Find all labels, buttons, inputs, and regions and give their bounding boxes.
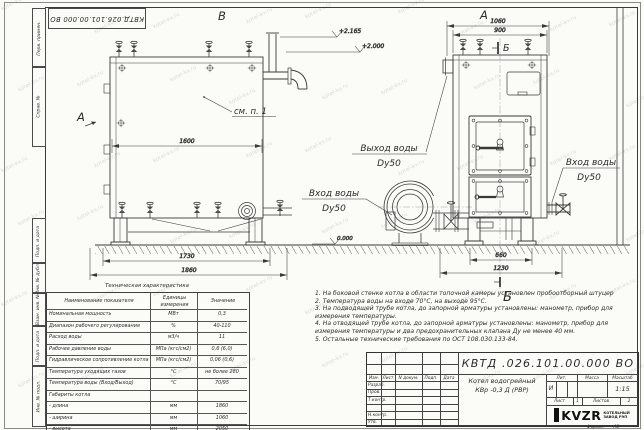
label-water-inlet-right: Вход воды (566, 158, 616, 168)
logo-kvzr: KVZR (561, 408, 601, 423)
label-water-outlet-dn: Dy50 (377, 159, 401, 169)
table-row: Рабочее давление водыМПа (кгс/см2)0,6 (6… (47, 345, 249, 357)
callout-see-note-1: см. п. 1 (234, 107, 267, 117)
fan-blower (378, 181, 472, 245)
sheets-value: 2 (620, 399, 638, 404)
note-4: 4. На отводящей трубе котла, до запорной… (315, 320, 638, 335)
table-row: Гидравлическое сопротивление котлаМПа (к… (47, 356, 249, 368)
table-row: - высотамм2050 (47, 425, 249, 430)
left-view (104, 33, 307, 245)
dim-1060: 1060 (490, 18, 505, 25)
tech-table-header: Наименование показателя Единицы измерени… (47, 293, 249, 310)
title-block: КВТД .026.101.00.000 ВО Котел водогрейны… (366, 352, 639, 427)
logo-bar (554, 408, 559, 422)
product-name: Котел водогрейный КВр -0,3 Д (РВР) (458, 377, 546, 394)
col-podp: Подп. (422, 376, 440, 381)
format-value: А3 (614, 425, 620, 430)
title-doc-number: КВТД .026.101.00.000 ВО (458, 353, 638, 374)
upper-door (469, 116, 535, 175)
table-row: - длинамм1860 (47, 402, 249, 414)
format-note: Формат А3 (568, 425, 638, 430)
col-izm: Изм. (367, 376, 381, 381)
table-row: Температура воды (Вход/Выход)°С70/95 (47, 379, 249, 391)
elevation-zero: 0.000 (337, 236, 353, 242)
section-label-b-top: Б (503, 43, 510, 54)
drawing-sheet: kotel-kv.rukotel-kv.rukotel-kv.rukotel-k… (0, 0, 644, 430)
table-row: Диапазон рабочего регулирования%40-110 (47, 322, 249, 334)
sheets-label: Листов (582, 399, 620, 404)
dim-900: 900 (494, 27, 506, 34)
label-water-inlet-left: Вход воды (309, 189, 359, 199)
sheet-value: 1 (573, 399, 582, 404)
col-list: Лист (381, 376, 395, 381)
col-ndokum: N докум. (395, 376, 422, 381)
lit-header: Лит. (546, 376, 577, 381)
row-nkontr: Н.контр. (368, 413, 387, 418)
table-row: Температура уходящих газов°Сне более 280 (47, 368, 249, 380)
format-label: Формат (587, 425, 605, 430)
scale-header: Масштаб (607, 376, 638, 381)
table-row: Номинальная мощностьМВт0,3 (47, 310, 249, 322)
company-logo: KVZR КОТЕЛЬНЫЙ ЗАВОД РЭП (548, 406, 636, 424)
col-header-units: Единицы измерения (151, 293, 198, 310)
dim-1730: 1730 (179, 253, 194, 260)
col-data: Дата (440, 376, 458, 381)
mass-header: Масса (577, 376, 607, 381)
label-water-inlet-right-dn: Dy50 (577, 173, 601, 183)
tech-table: Наименование показателя Единицы измерени… (46, 292, 250, 430)
lit-value: И (546, 385, 556, 392)
dim-1230: 1230 (493, 265, 508, 272)
view-label-a-top: А (479, 8, 488, 22)
elevation-2000: +2.000 (362, 43, 384, 50)
row-utv: Утв. (368, 420, 377, 425)
col-header-name: Наименование показателя (47, 293, 151, 310)
dim-660: 660 (495, 252, 507, 259)
row-razrab: Разраб. (368, 383, 385, 388)
chimney-riser (617, 8, 623, 245)
row-prov: Пров. (368, 390, 381, 395)
view-label-a-side: А (76, 110, 85, 124)
tech-table-title: Техническая характеристика (62, 283, 232, 289)
logo-subtitle: КОТЕЛЬНЫЙ ЗАВОД РЭП (603, 411, 629, 419)
water-outlet-flange (443, 58, 453, 76)
note-1: 1. На боковой стенке котла в области топ… (315, 290, 638, 298)
gas-outlet-elbow (263, 33, 307, 89)
view-labels: В А А Б Б (76, 8, 512, 305)
side-flange (239, 203, 256, 220)
water-inlet-valve (547, 194, 570, 215)
table-row: Габариты котла (47, 391, 249, 403)
table-row: Расход водым3/ч11 (47, 333, 249, 345)
dim-1860: 1860 (181, 267, 196, 274)
note-5: 5. Остальные технические требования по О… (315, 336, 638, 344)
elevation-2165: +2.165 (339, 28, 361, 35)
row-tkontr: Т.контр. (368, 398, 387, 403)
notes-block: 1. На боковой стенке котла в области топ… (315, 290, 638, 343)
label-water-outlet: Выход воды (360, 144, 417, 154)
label-water-inlet-left-dn: Dy50 (322, 204, 346, 214)
scale-value: 1:15 (607, 385, 638, 393)
view-label-v: В (218, 9, 226, 23)
table-row: - ширинамм1060 (47, 414, 249, 426)
sheet-label: Лист (546, 399, 573, 404)
col-header-value: Значение (198, 293, 247, 310)
dim-1600: 1600 (179, 138, 194, 145)
note-3: 3. На подводящей трубе котла, до запорно… (315, 305, 638, 320)
